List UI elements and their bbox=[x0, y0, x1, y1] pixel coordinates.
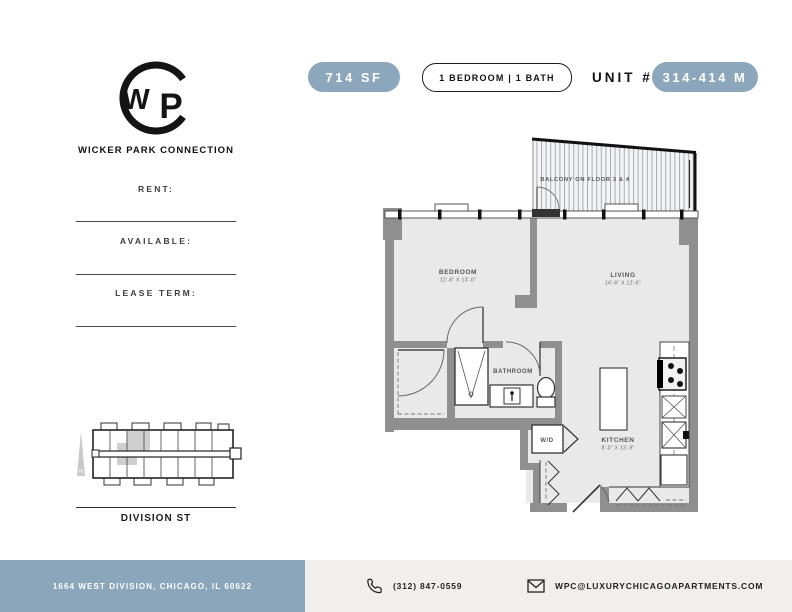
footer-contact-block: (312) 847-0559 WPC@LUXURYCHICAGOAPARTMEN… bbox=[305, 560, 792, 612]
north-arrow-icon: N bbox=[77, 431, 85, 476]
bathroom-label: BATHROOM bbox=[493, 369, 533, 375]
unit-number-badge: 314-414 M bbox=[652, 62, 758, 92]
balcony-sliding-door bbox=[532, 209, 560, 217]
kitchen-dims: 8'-0" X 13'-9" bbox=[601, 446, 634, 452]
building-key-map: N bbox=[70, 415, 242, 507]
unit-number-label: UNIT # bbox=[592, 70, 653, 85]
bed-bath-badge: 1 BEDROOM | 1 BATH bbox=[422, 63, 572, 92]
available-label: AVAILABLE: bbox=[56, 236, 256, 246]
bedroom-dims: 12'-6" X 13'-0" bbox=[440, 278, 476, 284]
email-row: WPC@LUXURYCHICAGOAPARTMENTS.COM bbox=[527, 560, 763, 612]
brand-name: WICKER PARK CONNECTION bbox=[36, 145, 276, 156]
washer-dryer-label: W/D bbox=[540, 438, 554, 444]
street-line bbox=[76, 507, 236, 508]
cwp-monogram-logo: W P bbox=[96, 56, 216, 142]
dishwasher bbox=[662, 396, 686, 418]
available-fill-line bbox=[76, 274, 236, 275]
phone-row: (312) 847-0559 bbox=[365, 560, 462, 612]
living-dims: 14'-6" X 12'-6" bbox=[605, 281, 641, 287]
logo-letter-p: P bbox=[159, 87, 182, 126]
svg-text:N: N bbox=[79, 469, 83, 475]
email-text: WPC@LUXURYCHICAGOAPARTMENTS.COM bbox=[555, 581, 763, 591]
corridor-east-entry bbox=[230, 448, 241, 459]
kitchen-sink bbox=[662, 422, 689, 448]
kitchen-label: KITCHEN bbox=[601, 437, 634, 444]
vanity-sink bbox=[490, 385, 533, 407]
bedroom-label: BEDROOM bbox=[439, 269, 477, 276]
envelope-icon bbox=[527, 579, 545, 593]
rent-fill-line bbox=[76, 221, 236, 222]
phone-icon bbox=[365, 577, 383, 595]
floor-plan: BALCONY ON FLOOR 3 & 4 bbox=[380, 130, 710, 522]
kitchen-island bbox=[600, 368, 627, 430]
corridor bbox=[96, 451, 234, 457]
corridor-west-entry bbox=[92, 450, 99, 457]
balcony: BALCONY ON FLOOR 3 & 4 bbox=[532, 139, 696, 211]
living-label: LIVING bbox=[610, 272, 635, 279]
toilet bbox=[537, 378, 555, 408]
balcony-label: BALCONY ON FLOOR 3 & 4 bbox=[540, 177, 630, 183]
address-text: 1664 WEST DIVISION, CHICAGO, IL 60622 bbox=[53, 582, 252, 591]
lease-term-label: LEASE TERM: bbox=[56, 288, 256, 298]
flyer-page: { "colors": { "accent": "#8ca7bc", "foot… bbox=[0, 0, 792, 612]
footer-address-block: 1664 WEST DIVISION, CHICAGO, IL 60622 bbox=[0, 560, 305, 612]
refrigerator bbox=[661, 455, 687, 485]
phone-text: (312) 847-0559 bbox=[393, 581, 462, 591]
street-label: DIVISION ST bbox=[56, 513, 256, 524]
lease-term-fill-line bbox=[76, 326, 236, 327]
square-footage-badge: 714 SF bbox=[308, 62, 400, 92]
shower bbox=[455, 348, 488, 405]
logo-letter-w: W bbox=[122, 84, 150, 116]
stove bbox=[657, 358, 686, 390]
rent-label: RENT: bbox=[56, 184, 256, 194]
